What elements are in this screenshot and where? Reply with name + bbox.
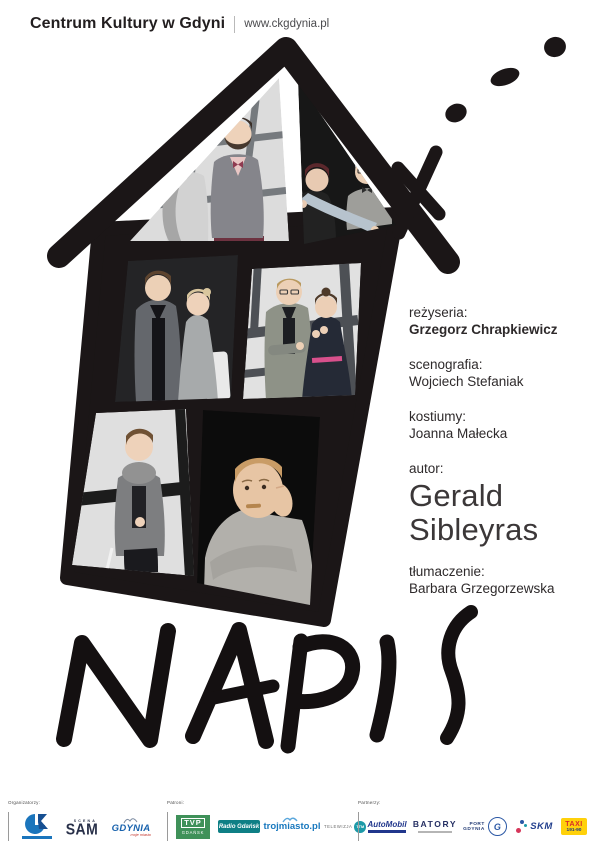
credit-translation: tłumaczenie: Barbara Grzegorzewska xyxy=(409,563,594,597)
footer-divider xyxy=(358,812,359,841)
logo-radio-gdansk: Radio Gdańsk xyxy=(218,820,260,833)
logo-taxi-191-90: TAXI 191-90 xyxy=(561,818,587,835)
port-gdynia-ring-icon: G xyxy=(488,817,507,836)
author-label: autor: xyxy=(409,460,594,477)
photo-pane-middle-left xyxy=(115,255,238,402)
patrons-group: Patroni: TVP GDAŃSK Radio Gdańsk trojmia… xyxy=(167,800,366,841)
photo-pane-middle-right xyxy=(243,262,361,400)
credit-scenography: scenografia: Wojciech Stefaniak xyxy=(409,356,594,390)
ck-logo-icon xyxy=(25,814,49,834)
author-first-name: Gerald xyxy=(409,481,594,511)
translation-label: tłumaczenie: xyxy=(409,563,594,580)
logo-batory: BATORY xyxy=(415,820,455,833)
footer-divider xyxy=(8,812,9,841)
footer-divider xyxy=(167,812,168,841)
costumes-name: Joanna Małecka xyxy=(409,425,594,442)
credit-director: reżyseria: Grzegorz Chrapkiewicz xyxy=(409,304,594,338)
logo-gdynia: GDYNIA moje miasto xyxy=(111,816,151,837)
credit-costumes: kostiumy: Joanna Małecka xyxy=(409,408,594,442)
credit-author: autor: Gerald Sibleyras xyxy=(409,460,594,545)
skm-dots-icon xyxy=(515,819,527,835)
ck-caption-bar xyxy=(22,836,52,840)
organizers-label: Organizatorzy: xyxy=(8,800,151,805)
theater-poster: Centrum Kultury w Gdyni www.ckgdynia.pl … xyxy=(0,0,600,849)
logo-skm: SKM xyxy=(515,819,553,835)
footer-sponsors: Organizatorzy: SCENA SAM xyxy=(0,796,600,849)
photo-pane-bottom-right xyxy=(197,410,320,606)
partners-label: Partnerzy: xyxy=(358,800,587,805)
patrons-label: Patroni: xyxy=(167,800,366,805)
batory-bar xyxy=(418,831,452,833)
director-name: Grzegorz Chrapkiewicz xyxy=(409,321,594,338)
author-last-name: Sibleyras xyxy=(409,515,594,545)
logo-scena-sam: SCENA SAM xyxy=(65,819,99,835)
logo-centrum-kultury xyxy=(21,814,53,839)
director-label: reżyseria: xyxy=(409,304,594,321)
logo-tvp-gdansk: TVP GDAŃSK xyxy=(176,815,210,839)
scenography-name: Wojciech Stefaniak xyxy=(409,373,594,390)
partners-group: Partnerzy: AutoMobil BATORY PORT GDYNIA … xyxy=(358,800,587,841)
scenography-label: scenografia: xyxy=(409,356,594,373)
logo-trojmiasto: trojmiasto.pl xyxy=(268,822,316,832)
automobil-bar xyxy=(368,830,406,833)
logo-port-gdynia: PORT GDYNIA G xyxy=(463,817,507,836)
credits-block: reżyseria: Grzegorz Chrapkiewicz scenogr… xyxy=(409,304,594,615)
napis-title xyxy=(64,612,471,746)
costumes-label: kostiumy: xyxy=(409,408,594,425)
translation-name: Barbara Grzegorzewska xyxy=(409,580,594,597)
smoke-puffs xyxy=(442,34,568,125)
bird-icon xyxy=(282,816,298,823)
logo-automobil: AutoMobil xyxy=(367,821,407,833)
organizers-group: Organizatorzy: SCENA SAM xyxy=(8,800,151,841)
